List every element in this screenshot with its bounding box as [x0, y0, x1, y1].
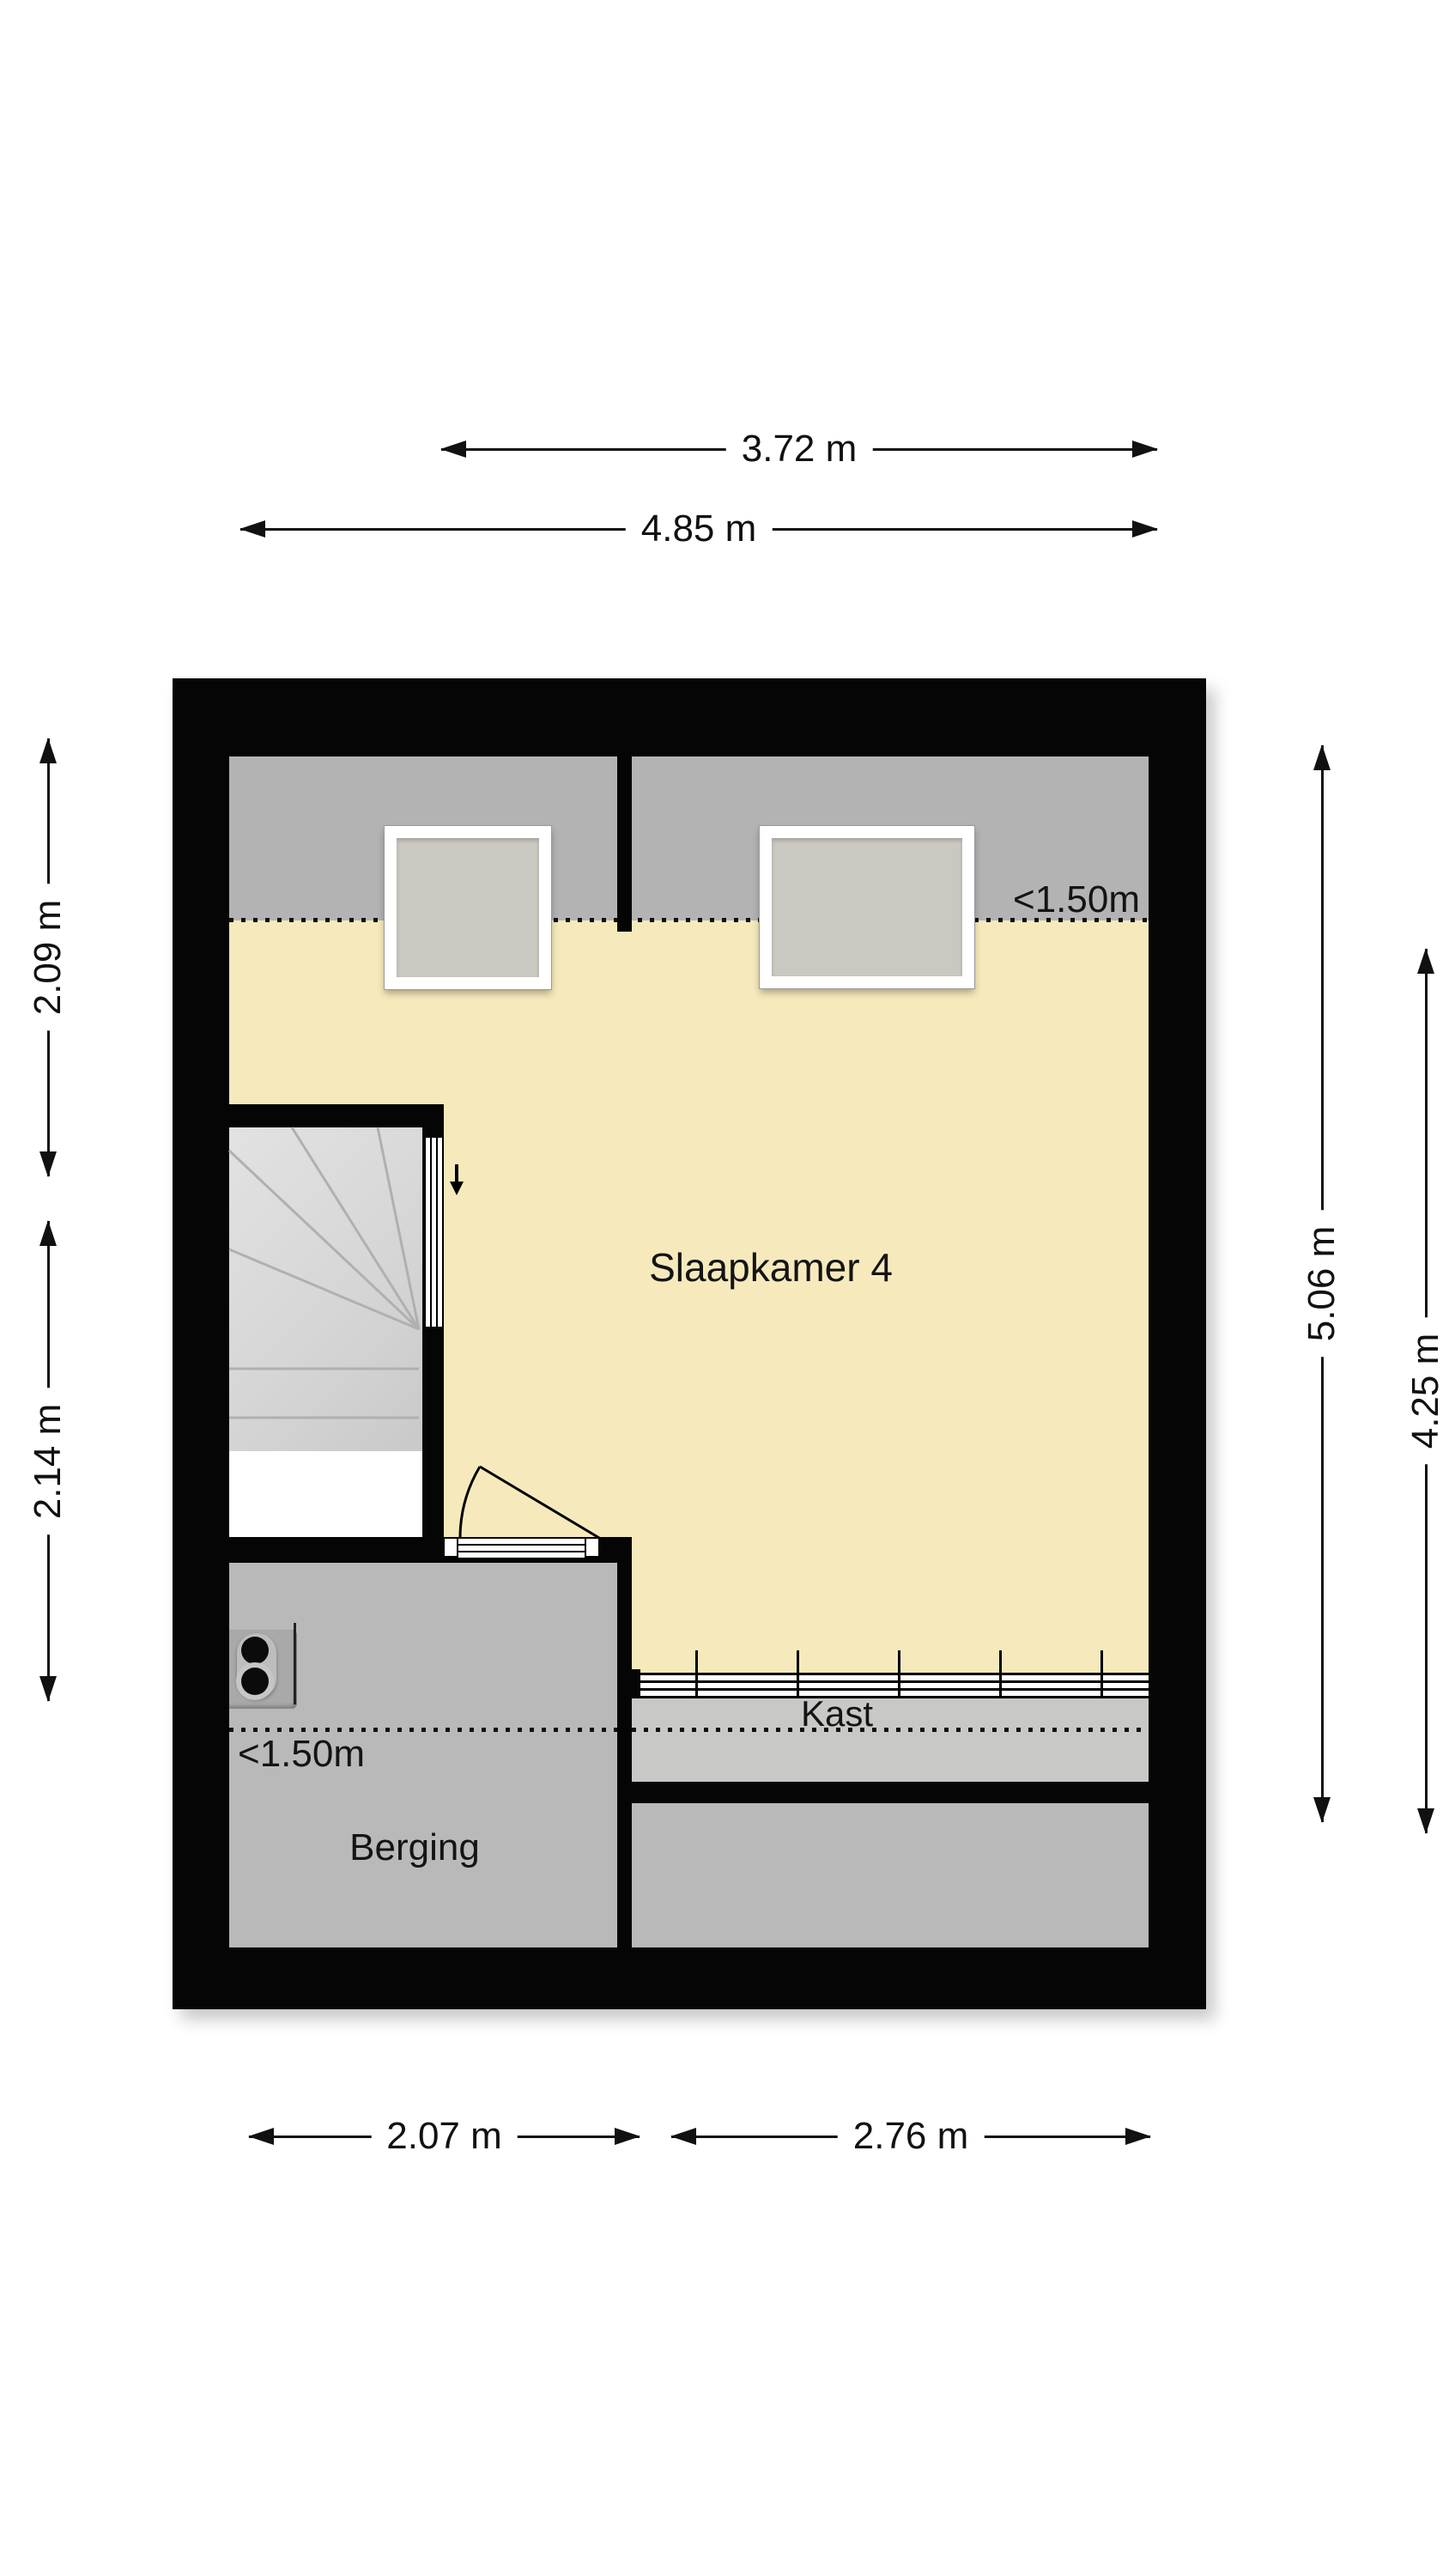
stair-treads: [229, 1127, 419, 1418]
arrowhead-up-icon: [1313, 744, 1331, 770]
dimension-left-2-09: 2.09 m: [29, 738, 67, 1176]
dimension-label: 2.14 m: [27, 1388, 70, 1534]
annotation-low-headroom-top: <1.50m: [1013, 878, 1140, 921]
dimension-label: 2.07 m: [371, 2115, 518, 2158]
room-label-berging: Berging: [349, 1826, 480, 1869]
door-swing-arc: [460, 1467, 480, 1538]
arrowhead-down-icon: [39, 1676, 57, 1702]
dimension-left-2-14: 2.14 m: [29, 1221, 67, 1701]
dimension-label: 4.25 m: [1404, 1318, 1447, 1465]
arrowhead-left-icon: [440, 440, 466, 458]
arrowhead-down-icon: [1417, 1808, 1434, 1834]
arrowhead-right-icon: [1132, 440, 1158, 458]
room-label-kast: Kast: [801, 1693, 873, 1735]
dimension-label: 3.72 m: [726, 428, 873, 471]
dimension-bottom-2-76: 2.76 m: [671, 2117, 1150, 2155]
arrowhead-left-icon: [248, 2128, 274, 2145]
dimension-label: 2.76 m: [838, 2115, 985, 2158]
dimension-right-5-06: 5.06 m: [1303, 745, 1341, 1822]
arrowhead-right-icon: [1132, 520, 1158, 538]
arrowhead-down-icon: [39, 1151, 57, 1177]
dimension-label: 2.09 m: [27, 884, 70, 1031]
dimension-top-3-72: 3.72 m: [441, 430, 1157, 468]
arrowhead-left-icon: [670, 2128, 696, 2145]
dimension-label: 5.06 m: [1300, 1211, 1343, 1358]
arrowhead-up-icon: [39, 1220, 57, 1246]
floorplan-page: Slaapkamer 4 Berging Kast <1.50m <1.50m …: [0, 0, 1449, 2576]
annotation-low-headroom-berging: <1.50m: [238, 1733, 365, 1776]
arrowhead-up-icon: [39, 738, 57, 763]
room-label-slaapkamer: Slaapkamer 4: [649, 1244, 893, 1291]
dimension-bottom-2-07: 2.07 m: [249, 2117, 640, 2155]
dimension-top-4-85: 4.85 m: [240, 510, 1157, 548]
dimension-right-4-25: 4.25 m: [1407, 949, 1445, 1833]
door-leaf: [480, 1467, 599, 1538]
door-swing: [460, 1467, 599, 1538]
arrowhead-up-icon: [1417, 948, 1434, 974]
stairs-down-arrow-icon: [450, 1164, 464, 1195]
arrowhead-left-icon: [239, 520, 265, 538]
arrowhead-down-icon: [1313, 1797, 1331, 1823]
dimension-label: 4.85 m: [626, 507, 773, 550]
arrowhead-right-icon: [1125, 2128, 1151, 2145]
arrowhead-right-icon: [615, 2128, 640, 2145]
